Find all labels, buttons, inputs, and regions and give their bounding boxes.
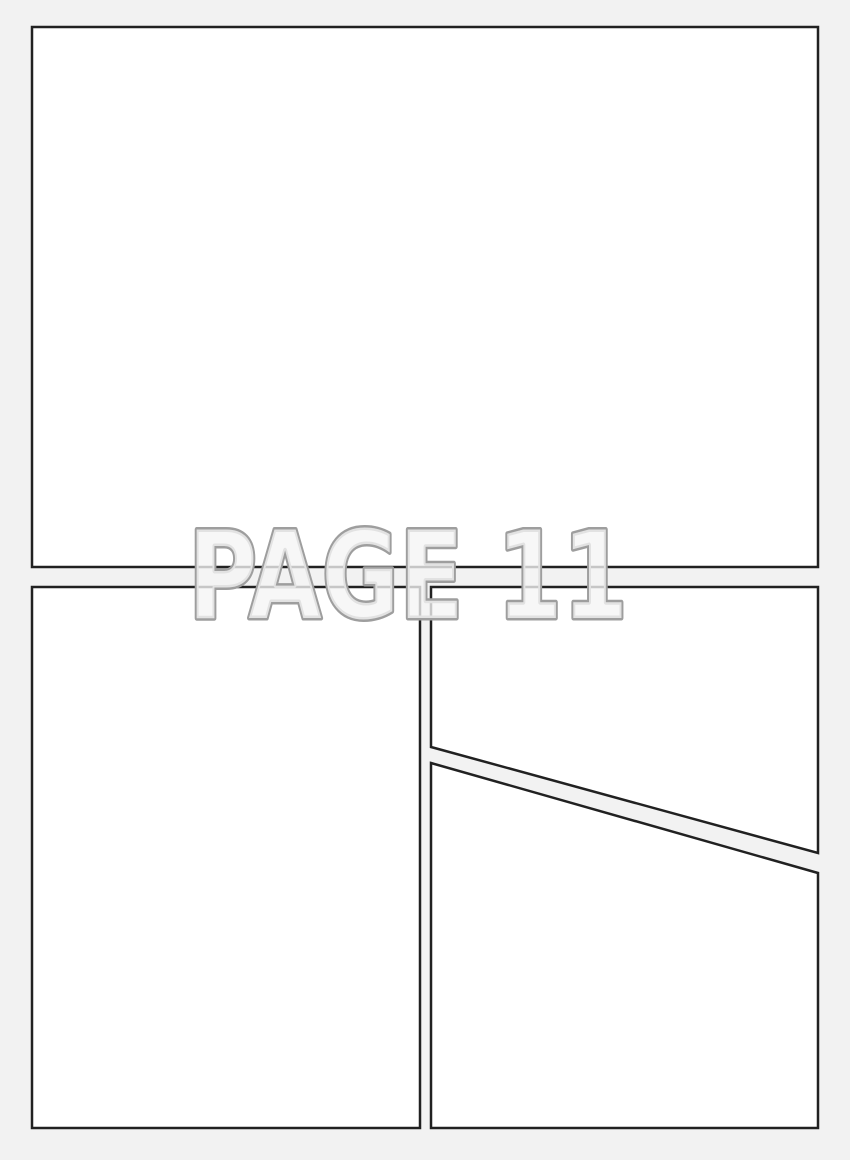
comic-page-template: PAGE 11 xyxy=(0,0,850,1160)
comic-page-canvas: PAGE 11 xyxy=(0,0,850,1160)
panel-top xyxy=(32,27,818,567)
panel-bottom-left xyxy=(32,587,420,1128)
page-number-label: PAGE 11 xyxy=(188,506,628,647)
